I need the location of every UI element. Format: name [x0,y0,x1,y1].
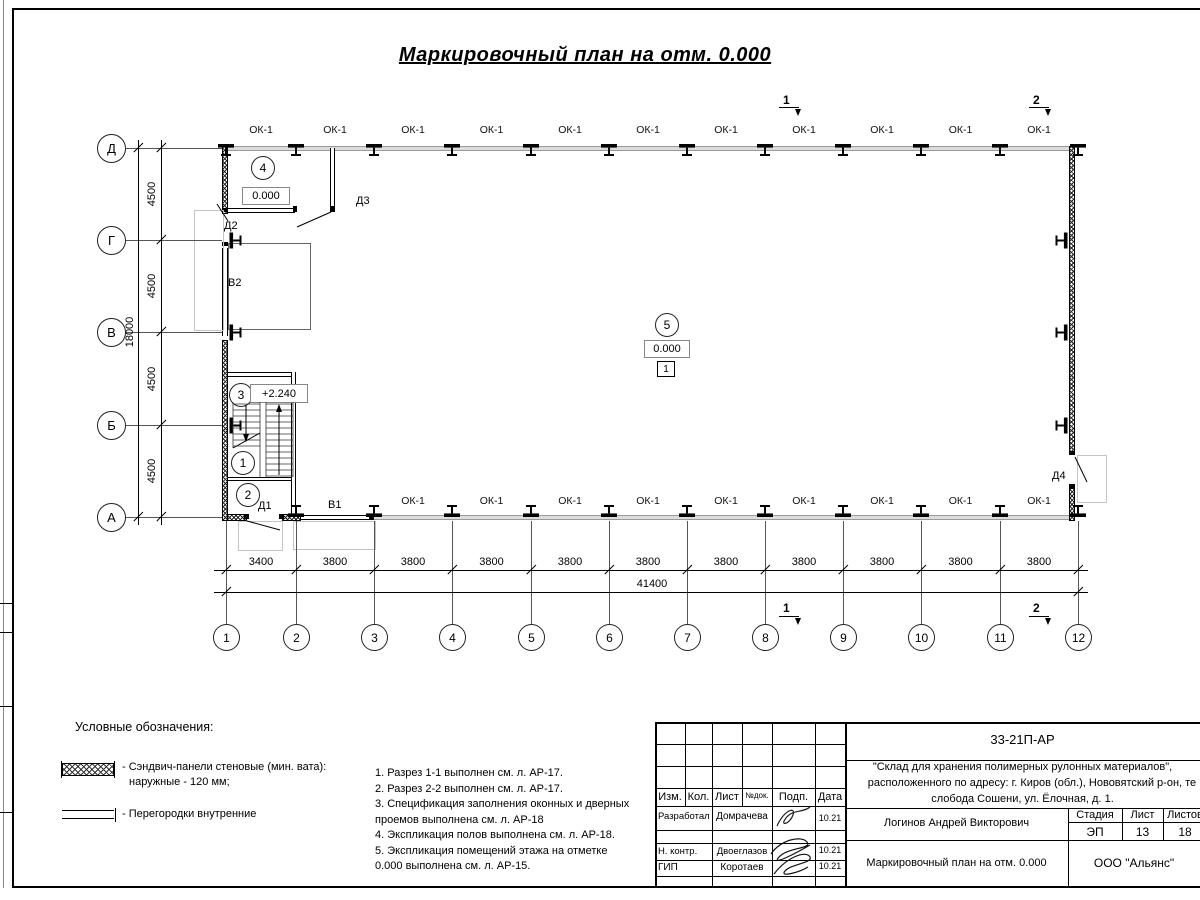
grid-line-vertical [452,521,453,624]
titleblock-sheets-value: 18 [1163,825,1200,839]
frame-margin-tick [0,706,12,707]
grid-bubble-row: А [97,503,126,532]
titleblock-header-cell: Кол. [685,791,712,803]
titleblock-header-cell: Изм. [655,791,685,803]
window-label-top: ОК-1 [472,124,512,136]
titleblock-role: Разработал [658,811,714,822]
grid-line-vertical [765,521,766,624]
grid-bubble-column: 8 [752,624,779,651]
drawing-sheet: Маркировочный план на отм. 0.000 Условны… [0,0,1200,900]
door-jamb [1069,484,1075,488]
door-jamb [279,514,284,519]
column-icon [288,144,304,157]
grid-line-horizontal [125,332,222,333]
grid-bubble-column: 9 [830,624,857,651]
porch-right [1077,455,1107,503]
grid-line-vertical [296,521,297,624]
grid-bubble-row: В [97,318,126,347]
wall-bottom-panel [374,515,1075,520]
frame-top [12,8,1200,10]
grid-line-vertical [609,521,610,624]
dim-value: 3800 [776,556,832,568]
column-icon [601,504,617,517]
section-mark-label: 2 [1033,601,1040,615]
column-icon [366,144,382,157]
titleblock-role: ГИП [658,862,714,873]
column-icon [913,144,929,157]
dim-value: 4500 [146,166,158,222]
grid-line-vertical [374,521,375,624]
legend-item-text: - Перегородки внутренние [122,808,256,820]
grid-bubble-column: 6 [596,624,623,651]
section-mark-arrow-icon [795,618,801,625]
room-number: 5 [655,313,679,337]
dim-value: 3800 [385,556,441,568]
porch-bottom [293,521,376,550]
legend-partition-symbol [62,810,114,819]
section-mark-label: 1 [783,601,790,615]
room-number: 1 [231,451,255,475]
window-label-bottom: ОК-1 [393,495,433,507]
column-icon [1055,324,1068,340]
titleblock-project-line1: "Склад для хранения полимерных рулонных … [847,761,1198,773]
dim-value: 4500 [146,443,158,499]
titleblock-name: Коротаев [712,862,772,873]
titleblock-border [655,744,845,745]
column-icon [757,504,773,517]
dim-line [214,570,1088,571]
titleblock-chief-name: Логинов Андрей Викторович [845,817,1068,829]
titleblock-role: Н. контр. [658,846,714,857]
titleblock-date: 10.21 [815,813,845,823]
column-icon [230,232,243,248]
grid-bubble-row: Г [97,226,126,255]
dim-value: 3800 [854,556,910,568]
door-jamb [244,514,249,519]
grid-bubble-row: Б [97,411,126,440]
frame-bottom [12,886,1200,888]
window-label-bottom: ОК-1 [784,495,824,507]
titleblock-sheet-value: 13 [1122,825,1163,839]
grid-line-vertical [1078,521,1079,624]
column-icon [679,144,695,157]
titleblock-date: 10.21 [815,845,845,855]
note-line: 2. Разрез 2-2 выполнен см. л. АР-17. [375,782,675,798]
frame-margin-tick [0,632,12,633]
grid-bubble-column: 2 [283,624,310,651]
titleblock-border [772,722,773,888]
wall-right-hatch [1069,146,1075,452]
dim-value: 3800 [307,556,363,568]
grid-bubble-column: 12 [1065,624,1092,651]
dim-value: 4500 [146,351,158,407]
titleblock-stage-value: ЭП [1068,825,1122,839]
column-icon [835,144,851,157]
column-icon [757,144,773,157]
porch-bottom [238,521,283,551]
room-number: 4 [251,156,275,180]
titleblock-border [655,806,845,807]
titleblock-border [1068,822,1200,823]
column-icon [218,144,234,157]
note-line: 0.000 выполнена см. л. АР-15. [375,859,675,875]
column-icon [992,144,1008,157]
dim-line-total [138,140,139,525]
grid-line-vertical [921,521,922,624]
section-mark-arrow-icon [1045,618,1051,625]
notes-block: 1. Разрез 1-1 выполнен см. л. АР-17.2. Р… [375,766,675,875]
window-label-bottom: ОК-1 [628,495,668,507]
grid-line-horizontal [125,425,222,426]
gate-v1-wall [301,515,374,520]
window-label-top: ОК-1 [862,124,902,136]
titleblock-border [655,788,845,789]
column-icon [1070,504,1086,517]
column-icon [992,504,1008,517]
titleblock-border [845,840,1200,841]
frame-margin-tick [0,812,12,813]
elevation-mark: +2.240 [250,384,308,403]
dim-value: 3400 [233,556,289,568]
titleblock-name: Домрачева [712,811,772,822]
titleblock-header-cell: Лист [712,791,742,803]
titleblock-doc-number: 33-21П-АР [847,732,1198,747]
legend-item-text: - Сэндвич-панели стеновые (мин. вата): [122,761,326,773]
note-line: 1. Разрез 1-1 выполнен см. л. АР-17. [375,766,675,782]
column-icon [679,504,695,517]
column-icon [523,504,539,517]
grid-line-horizontal [125,517,222,518]
grid-line-vertical [226,521,227,624]
window-label-bottom: ОК-1 [550,495,590,507]
titleblock-border [655,722,1200,724]
section-mark-label: 1 [783,93,790,107]
dim-value: 3800 [933,556,989,568]
grid-line-horizontal [125,240,222,241]
elevation-mark: 0.000 [242,187,290,205]
elevation-mark: 0.000 [644,340,690,358]
dim-value: 3800 [542,556,598,568]
titleblock-header-cell: Подп. [772,791,815,803]
gate-label: В2 [228,277,241,289]
column-icon [366,504,382,517]
sheet-edge [3,0,4,888]
section-mark-label: 2 [1033,93,1040,107]
note-line: 5. Экспликация помещений этажа на отметк… [375,844,675,860]
window-label-top: ОК-1 [550,124,590,136]
titleblock-project-line3: слобода Сошени, ул. Ёлочная, д. 1. [847,793,1198,805]
door-label: Д3 [356,195,370,207]
column-icon [230,324,243,340]
column-icon [601,144,617,157]
titleblock-header-cell: Дата [815,791,845,803]
window-label-bottom: ОК-1 [862,495,902,507]
note-line: 4. Экспликация полов выполнена см. л. АР… [375,828,675,844]
titleblock-company: ООО "Альянс" [1068,856,1200,870]
door-label: Д1 [258,500,272,512]
section-mark-arrow-icon [795,109,801,116]
frame-margin-tick [0,603,12,604]
dim-total-value: 41400 [624,578,680,590]
column-icon [1055,417,1068,433]
window-label-bottom: ОК-1 [472,495,512,507]
window-label-top: ОК-1 [393,124,433,136]
titleblock-name: Двоеглазов [712,846,772,857]
grid-bubble-row: Д [97,134,126,163]
window-label-bottom: ОК-1 [706,495,746,507]
titleblock-border [655,722,657,888]
legend-heading: Условные обозначения: [75,720,214,734]
page-title: Маркировочный план на отм. 0.000 [330,44,840,67]
dim-value: 3800 [1011,556,1067,568]
column-icon [444,144,460,157]
partition-room4 [228,208,295,213]
titleblock-stage-label: Стадия [1068,809,1122,821]
column-icon [1055,232,1068,248]
grid-line-vertical [531,521,532,624]
dim-value: 3800 [698,556,754,568]
titleblock-project-line2: расположенного по адресу: г. Киров (обл.… [847,777,1200,789]
grid-bubble-column: 1 [213,624,240,651]
grid-bubble-column: 11 [987,624,1014,651]
titleblock-border [655,843,845,844]
room-number: 2 [236,483,260,507]
grid-bubble-column: 7 [674,624,701,651]
window-label-top: ОК-1 [241,124,281,136]
note-line: проемов выполнена см. л. АР-18 [375,813,675,829]
window-label-bottom: ОК-1 [941,495,981,507]
titleblock-border [655,766,845,767]
dim-line-total [214,592,1088,593]
door-jamb [293,206,297,212]
titleblock-drawing-name: Маркировочный план на отм. 0.000 [845,857,1068,869]
titleblock-sheets-label: Листов [1163,809,1200,821]
floor-type-mark: 1 [657,361,675,377]
titleblock-header-cell: №док. [742,791,772,800]
window-label-top: ОК-1 [941,124,981,136]
titleblock-date: 10.21 [815,861,845,871]
column-icon [913,504,929,517]
door-jamb [330,206,334,212]
grid-bubble-column: 3 [361,624,388,651]
column-icon [230,417,243,433]
legend-item-text: наружные - 120 мм; [129,776,230,788]
door-label: Д4 [1052,470,1066,482]
wall-left-hatch [222,340,228,521]
frame-left [12,8,14,888]
porch-left [194,210,224,331]
grid-line-horizontal [125,148,222,149]
partition-stair-top [228,372,296,377]
partition-room1-2 [228,477,291,481]
grid-bubble-column: 5 [518,624,545,651]
window-label-top: ОК-1 [315,124,355,136]
grid-line-vertical [687,521,688,624]
column-icon [835,504,851,517]
dim-value: 3800 [620,556,676,568]
dim-value: 4500 [146,258,158,314]
dim-value: 3800 [464,556,520,568]
column-icon [1070,144,1086,157]
note-line: 3. Спецификация заполнения оконных и две… [375,797,675,813]
grid-bubble-column: 10 [908,624,935,651]
window-label-bottom: ОК-1 [1019,495,1059,507]
door-jamb [1069,451,1075,455]
column-icon [288,504,304,517]
window-label-top: ОК-1 [706,124,746,136]
titleblock-sheet-label: Лист [1122,809,1163,821]
grid-line-vertical [1000,521,1001,624]
door-label: Д2 [224,220,238,232]
wall-top-panel [222,146,1075,151]
partition-room4 [330,148,335,212]
window-label-top: ОК-1 [784,124,824,136]
window-label-top: ОК-1 [628,124,668,136]
column-icon [523,144,539,157]
section-mark-arrow-icon [1045,109,1051,116]
grid-line-vertical [843,521,844,624]
grid-bubble-column: 4 [439,624,466,651]
window-label-top: ОК-1 [1019,124,1059,136]
gate-label: В1 [328,499,341,511]
titleblock-border [655,876,845,877]
titleblock-border [655,830,845,831]
column-icon [444,504,460,517]
legend-sandwich-panel-symbol [62,763,114,776]
